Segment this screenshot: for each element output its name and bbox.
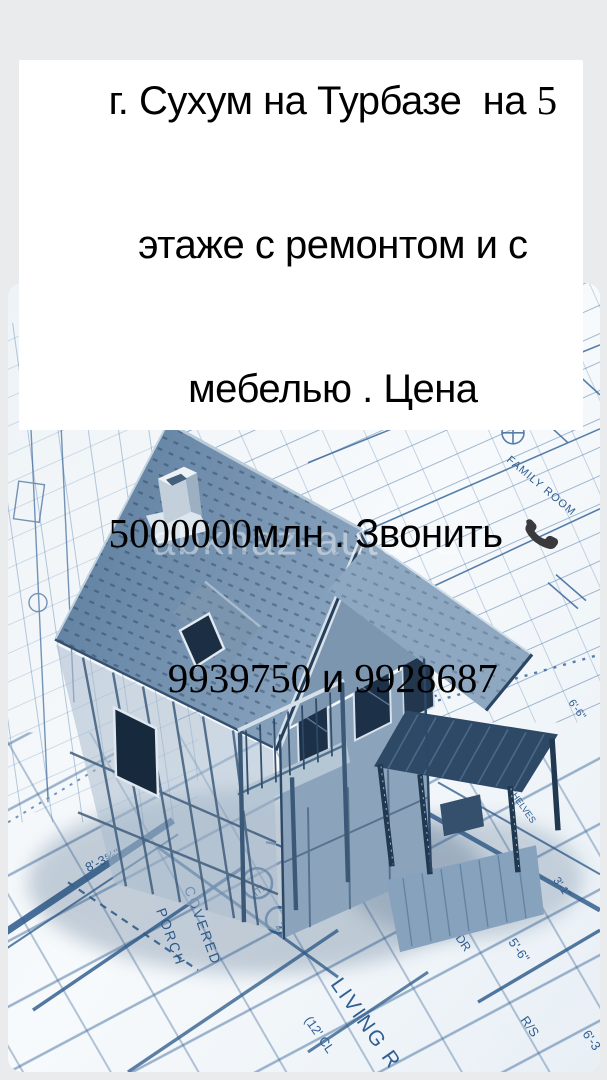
announcement-card: Срочно продается однокомнатная квартира … — [19, 60, 583, 430]
ad-post: COVERED PORCH LIVING R (12' CL PWDR FAMI… — [0, 0, 607, 1080]
price-value: 5000000 — [109, 510, 253, 556]
announcement-text: этаже с ремонтом и с — [138, 223, 527, 267]
announcement-text: мебелью . Цена — [188, 367, 477, 411]
announcement-line-3: г. Сухум на Турбазе на 5 — [19, 28, 583, 173]
announcement-text: г. Сухум на Турбазе на — [109, 79, 537, 123]
announcement-line-4: этаже с ремонтом и с — [19, 173, 583, 317]
phone-number-1: 9939750 — [168, 655, 312, 701]
announcement-line-6: 5000000млн . Звонить — [19, 461, 583, 606]
announcement-line-7: 9939750 и 9928687 — [19, 606, 583, 751]
phone-number-2: 9928687 — [354, 655, 498, 701]
announcement-text: и — [311, 657, 354, 701]
floor-number: 5 — [537, 77, 558, 123]
announcement-text: млн . Звонить — [252, 512, 513, 556]
announcement-line-5: мебелью . Цена — [19, 317, 583, 461]
announcement-line-2: однокомнатная квартира в — [19, 0, 583, 28]
telephone-receiver-icon — [515, 512, 560, 557]
